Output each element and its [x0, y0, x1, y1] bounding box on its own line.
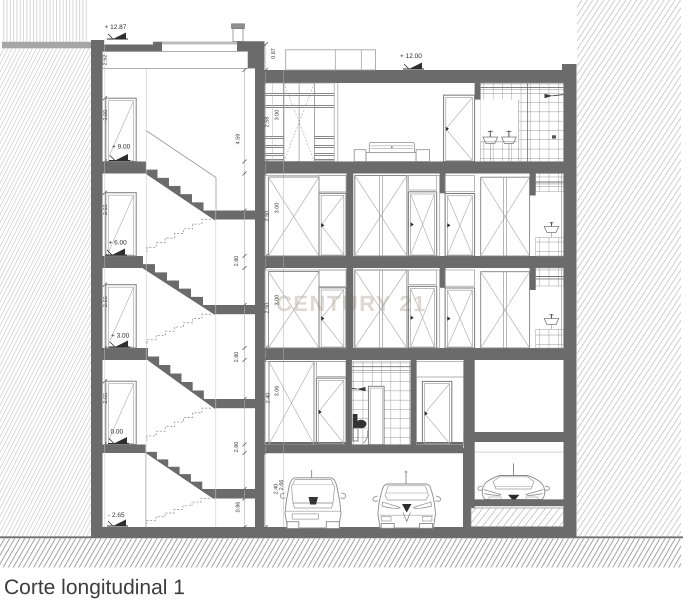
- svg-text:Corte longitudinal 1: Corte longitudinal 1: [4, 576, 185, 599]
- svg-text:0.87: 0.87: [271, 48, 277, 59]
- svg-text:3.00: 3.00: [274, 203, 280, 214]
- svg-text:2.65: 2.65: [103, 393, 109, 404]
- svg-text:3.06: 3.06: [274, 386, 280, 397]
- svg-text:3.00: 3.00: [274, 295, 280, 306]
- svg-text:+ 12.87: + 12.87: [104, 24, 126, 31]
- svg-text:2.66: 2.66: [279, 480, 285, 491]
- svg-text:2.40: 2.40: [265, 393, 271, 404]
- svg-text:2.80: 2.80: [234, 442, 240, 453]
- svg-text:2.58: 2.58: [264, 117, 270, 128]
- svg-text:2.80: 2.80: [234, 256, 240, 267]
- svg-text:2.52: 2.52: [103, 55, 109, 66]
- svg-text:2.50: 2.50: [264, 211, 270, 222]
- svg-text:3.00: 3.00: [103, 110, 109, 121]
- svg-text:- 2.65: - 2.65: [108, 512, 125, 519]
- svg-text:+ 3.00: + 3.00: [111, 333, 130, 340]
- svg-text:2.50: 2.50: [264, 303, 270, 314]
- svg-text:+ 6.00: + 6.00: [108, 240, 127, 247]
- svg-text:0.86: 0.86: [236, 502, 242, 513]
- svg-text:4.59: 4.59: [236, 134, 242, 145]
- svg-text:2.80: 2.80: [234, 352, 240, 363]
- svg-text:0.00: 0.00: [110, 429, 123, 436]
- svg-text:2.65: 2.65: [103, 296, 109, 307]
- svg-text:2.65: 2.65: [103, 204, 109, 215]
- svg-text:3.00: 3.00: [274, 110, 280, 121]
- svg-text:+ 9.00: + 9.00: [112, 144, 131, 151]
- svg-text:+ 12.00: + 12.00: [400, 53, 422, 60]
